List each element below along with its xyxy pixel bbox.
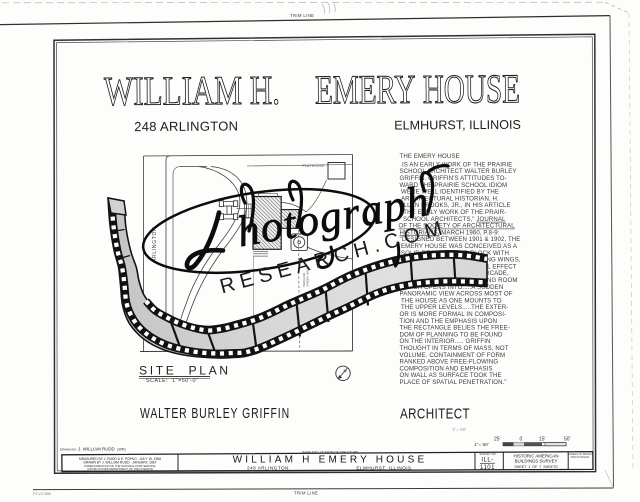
svg-text:THE EMERY HOUSE: THE EMERY HOUSE	[400, 153, 460, 160]
svg-text:EMERY HOUSE: EMERY HOUSE	[315, 65, 520, 112]
svg-text:AND PLANNING: AND PLANNING	[571, 456, 590, 459]
svg-text:1"= 50': 1"= 50'	[452, 427, 466, 432]
svg-text:15': 15'	[539, 437, 546, 443]
svg-text:1101: 1101	[480, 465, 495, 471]
svg-text:1"= 50': 1"= 50'	[474, 442, 489, 448]
svg-text:248 ARLINGTON: 248 ARLINGTON	[134, 118, 238, 134]
svg-text:UNITED STATES DEPARTMENT OF TH: UNITED STATES DEPARTMENT OF THE INTERIOR	[87, 467, 152, 471]
svg-text:SHEET 1 OF 7 SHEETS: SHEET 1 OF 7 SHEETS	[514, 465, 558, 469]
svg-text:ARCHITECT: ARCHITECT	[400, 407, 470, 423]
svg-text:TRIM LINE: TRIM LINE	[294, 491, 318, 496]
svg-text:SURVEY NO.: SURVEY NO.	[479, 452, 496, 456]
svg-text:WALTER BURLEY GRIFFIN: WALTER BURLEY GRIFFIN	[140, 406, 290, 422]
svg-text:50': 50'	[564, 437, 571, 443]
svg-text:ARLINGTON: ARLINGTON	[152, 227, 158, 262]
svg-text:SITE PLAN: SITE PLAN	[139, 364, 231, 378]
svg-text:F.S.V.G 3/66: F.S.V.G 3/66	[33, 492, 51, 496]
svg-text:ELMHURST, ILLINOIS: ELMHURST, ILLINOIS	[394, 118, 521, 133]
svg-text:0: 0	[520, 437, 523, 443]
svg-text:WILLIAM H EMERY HOUSE: WILLIAM H EMERY HOUSE	[233, 455, 428, 466]
svg-text:TRIM LINE: TRIM LINE	[290, 13, 314, 18]
svg-text:WILLIAM H.: WILLIAM H.	[104, 67, 280, 114]
svg-text:DRAWN BY J. WILLIAM RUDD -: DRAWN BY J. WILLIAM RUDD - JANUARY, 1967	[84, 461, 157, 465]
svg-text:PLAYHOUSE: PLAYHOUSE	[303, 164, 326, 168]
svg-text:N: N	[344, 369, 347, 374]
svg-text:ILL-: ILL-	[481, 458, 493, 464]
svg-text:PLACE OF SPATIAL PENETRATIO: PLACE OF SPATIAL PENETRATION."	[400, 379, 507, 386]
svg-text:248 ARLINGTON: 248 ARLINGTON	[247, 465, 289, 470]
svg-text:25': 25'	[494, 437, 501, 443]
svg-text:NAME AND LOCATION OF STRUC: NAME AND LOCATION OF STRUCTURE	[302, 450, 358, 454]
svg-text:SCALE: 1"=50'-0": SCALE: 1"=50'-0"	[146, 378, 198, 384]
svg-text:DRAWN BY: J. WILLIAM RUDD (: DRAWN BY: J. WILLIAM RUDD (WR)	[60, 447, 126, 452]
svg-text:BUILDINGS SURVEY: BUILDINGS SURVEY	[515, 459, 558, 464]
svg-text:ELMHURST, ILLINOIS: ELMHURST, ILLINOIS	[356, 465, 411, 470]
